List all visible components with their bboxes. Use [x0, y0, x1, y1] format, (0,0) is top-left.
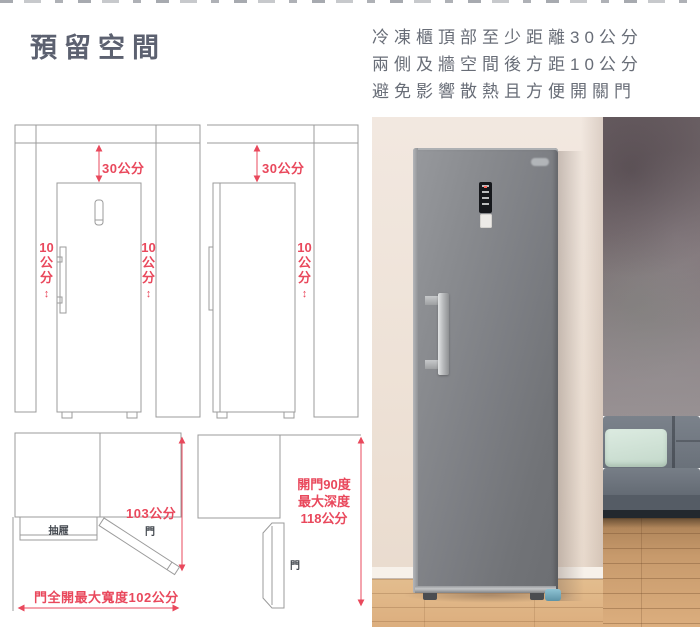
living-room-section [603, 117, 700, 627]
freezer-caster [545, 589, 561, 601]
drawer-label: 抽屜 [20, 522, 97, 537]
top-clearance-label-side: 30公分 [262, 158, 304, 177]
handle-bracket [425, 296, 439, 305]
full-open-width-label: 門全開最大寬度102公分 [34, 587, 179, 606]
sofa-seam [676, 440, 700, 442]
upright-freezer [413, 148, 558, 601]
freezer-handle [425, 293, 449, 375]
mint-cushion [605, 429, 667, 467]
sofa-seat [603, 468, 700, 495]
kickplate [415, 586, 556, 593]
led-indicator [484, 186, 487, 188]
floor-shade [603, 518, 700, 528]
concrete-wall [603, 117, 700, 416]
led-display [482, 185, 489, 209]
back-clearance-label: 10公分↕ [296, 240, 313, 302]
freezer-door [413, 148, 558, 593]
updown-arrow-icon: ↕ [146, 288, 152, 300]
updown-arrow-icon: ↕ [44, 288, 50, 300]
side-clearance-label-right: 10公分↕ [140, 240, 157, 302]
side-clearance-label-left: 10公分↕ [38, 240, 55, 302]
door-label-full-open: 門 [145, 523, 155, 538]
sofa-shadow [603, 510, 700, 518]
handle-bracket [425, 360, 439, 369]
depth-103-label: 103公分 [126, 503, 176, 522]
product-photo [372, 117, 700, 627]
freezer-wall-shadow [558, 151, 584, 601]
freezer-foot [530, 593, 544, 600]
control-buttons [480, 214, 492, 228]
wood-floor-right [603, 518, 700, 627]
door-90-note: 開門90度 最大深度 118公分 [293, 476, 355, 527]
freezer-foot [423, 593, 437, 600]
control-panel [479, 182, 492, 213]
sofa [603, 416, 700, 518]
handle-bar [438, 293, 449, 375]
product-clearance-page: 預留空間 冷凍櫃頂部至少距離30公分 兩側及牆空間後方距10公分 避免影響散熱且… [0, 0, 700, 627]
door-label-90: 門 [290, 557, 300, 572]
updown-arrow-icon: ↕ [302, 288, 308, 300]
wall-corner-shade [581, 117, 603, 567]
brand-logo [531, 158, 549, 166]
freezer-door-edge [413, 148, 418, 593]
top-clearance-label-front: 30公分 [102, 158, 144, 177]
sofa-seam [672, 416, 675, 468]
